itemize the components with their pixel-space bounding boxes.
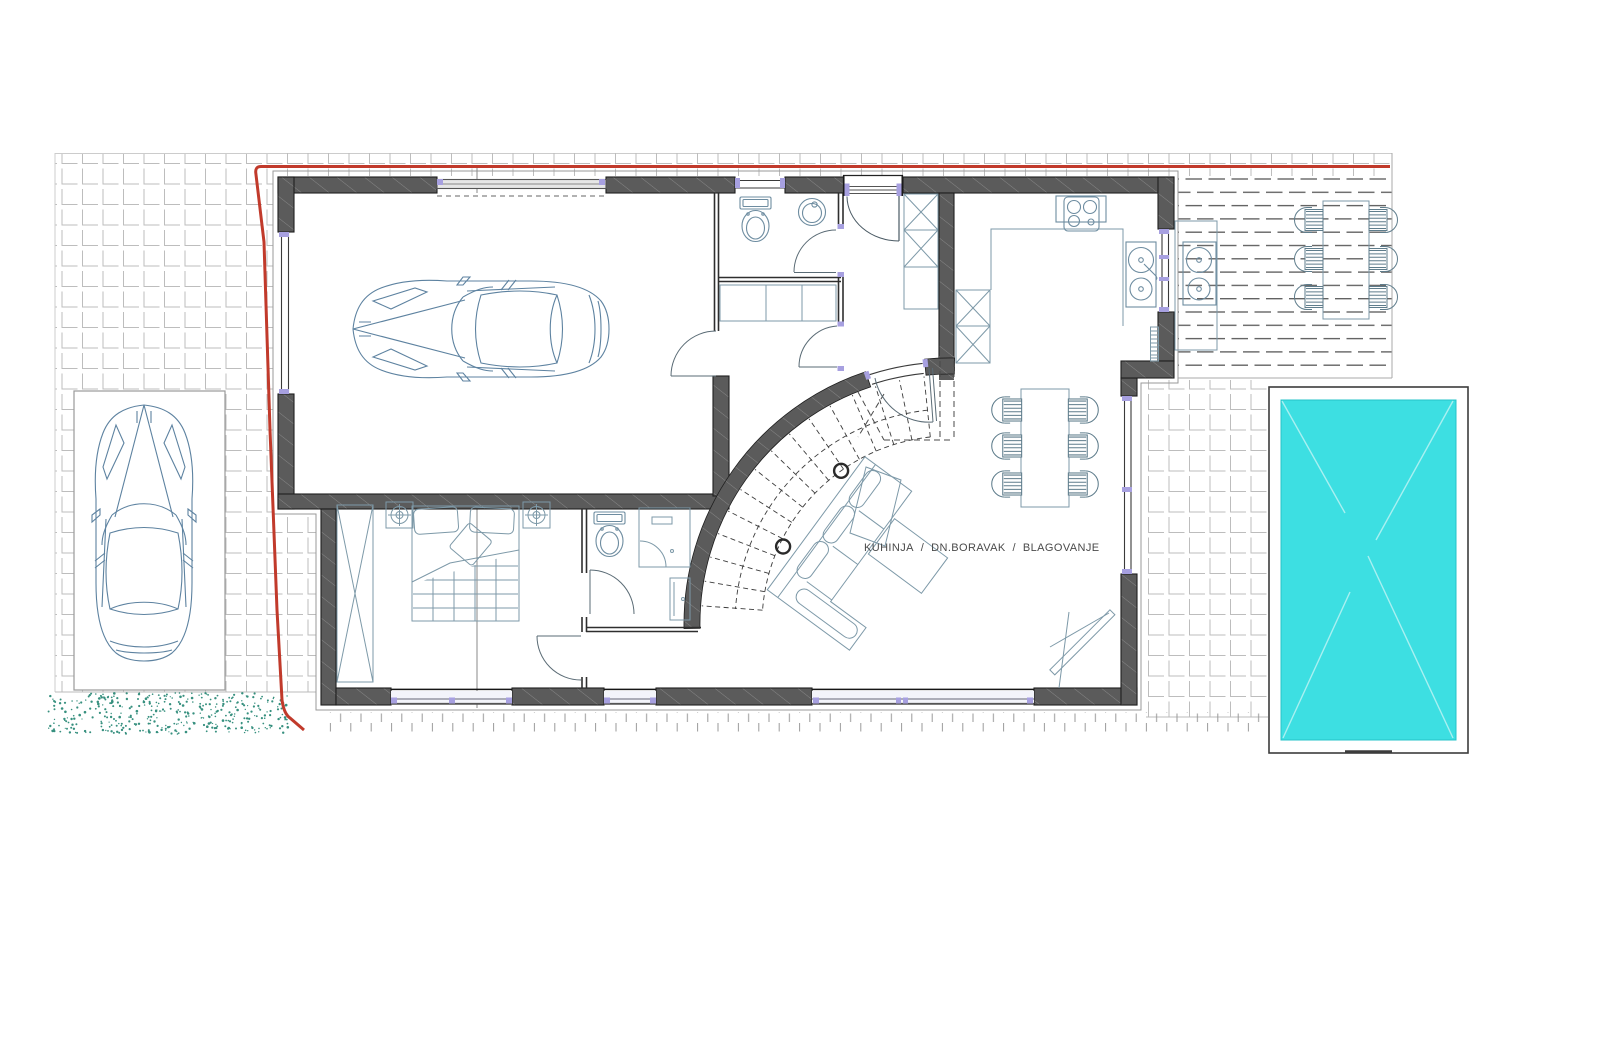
svg-text:KUHINJA / DN.BORAVAK / BLA: KUHINJA / DN.BORAVAK / BLAGOVANJE (864, 542, 1099, 554)
